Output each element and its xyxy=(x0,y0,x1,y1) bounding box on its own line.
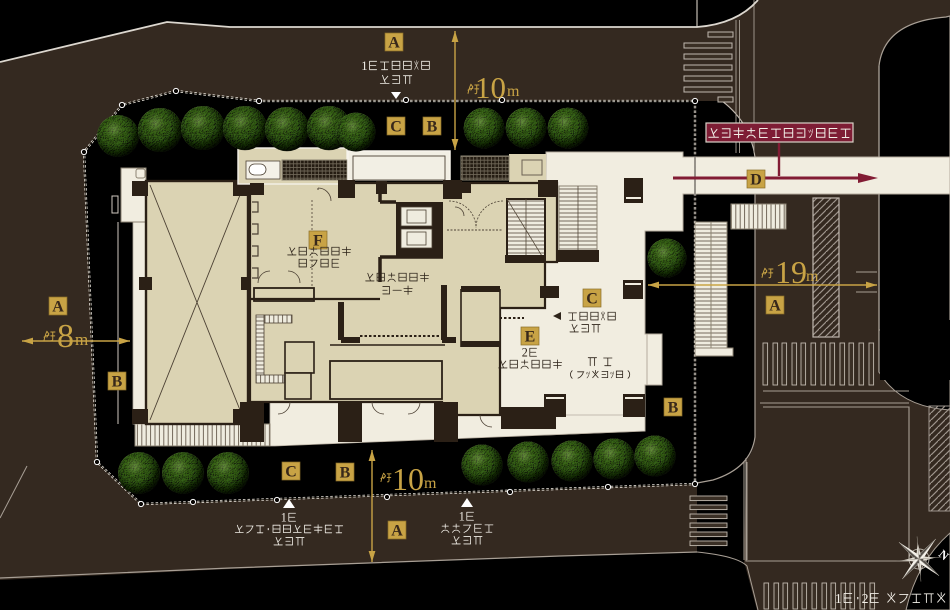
svg-text:1: 1 xyxy=(459,510,465,524)
svg-text:C: C xyxy=(390,119,402,136)
svg-text:C: C xyxy=(586,291,598,308)
svg-text:10: 10 xyxy=(392,461,424,497)
svg-text:A: A xyxy=(391,523,403,540)
svg-text:C: C xyxy=(285,464,297,481)
svg-text:m: m xyxy=(806,268,819,285)
svg-text:2: 2 xyxy=(862,591,869,606)
svg-text:D: D xyxy=(750,172,762,189)
svg-text:A: A xyxy=(52,299,64,316)
svg-text:10: 10 xyxy=(475,70,506,105)
svg-text:8: 8 xyxy=(57,318,74,355)
svg-text:B: B xyxy=(112,374,123,391)
svg-text:A: A xyxy=(769,298,781,315)
svg-text:B: B xyxy=(427,119,438,136)
svg-text:m: m xyxy=(424,475,437,492)
svg-text:E: E xyxy=(525,329,536,346)
svg-text:m: m xyxy=(75,330,88,349)
svg-text:1: 1 xyxy=(835,591,842,606)
svg-text:1: 1 xyxy=(281,511,287,525)
svg-text:2: 2 xyxy=(522,346,528,360)
svg-text:B: B xyxy=(340,465,351,482)
svg-text:19: 19 xyxy=(775,254,807,290)
svg-text:B: B xyxy=(668,400,679,417)
svg-text:m: m xyxy=(507,83,520,100)
svg-text:1: 1 xyxy=(361,59,367,73)
svg-text:A: A xyxy=(388,35,400,52)
